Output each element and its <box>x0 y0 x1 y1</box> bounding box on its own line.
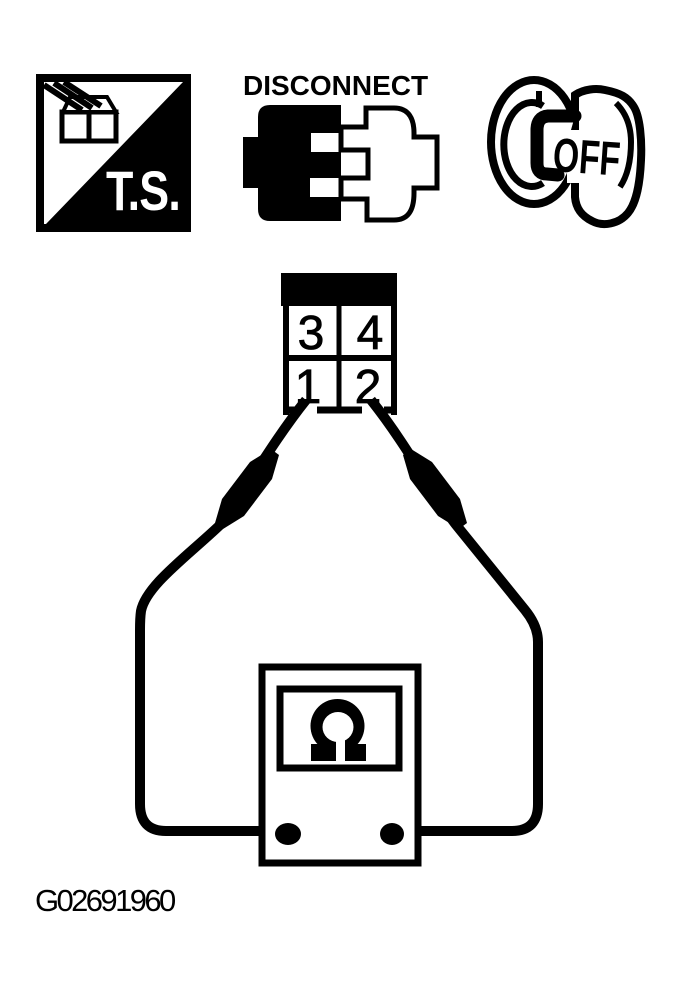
svg-text:4: 4 <box>357 307 384 360</box>
svg-text:G02691960: G02691960 <box>35 883 176 918</box>
svg-text:DISCONNECT: DISCONNECT <box>243 70 428 101</box>
svg-text:T.S.: T.S. <box>106 159 180 222</box>
svg-text:3: 3 <box>298 307 325 360</box>
svg-text:OFF: OFF <box>551 127 622 186</box>
